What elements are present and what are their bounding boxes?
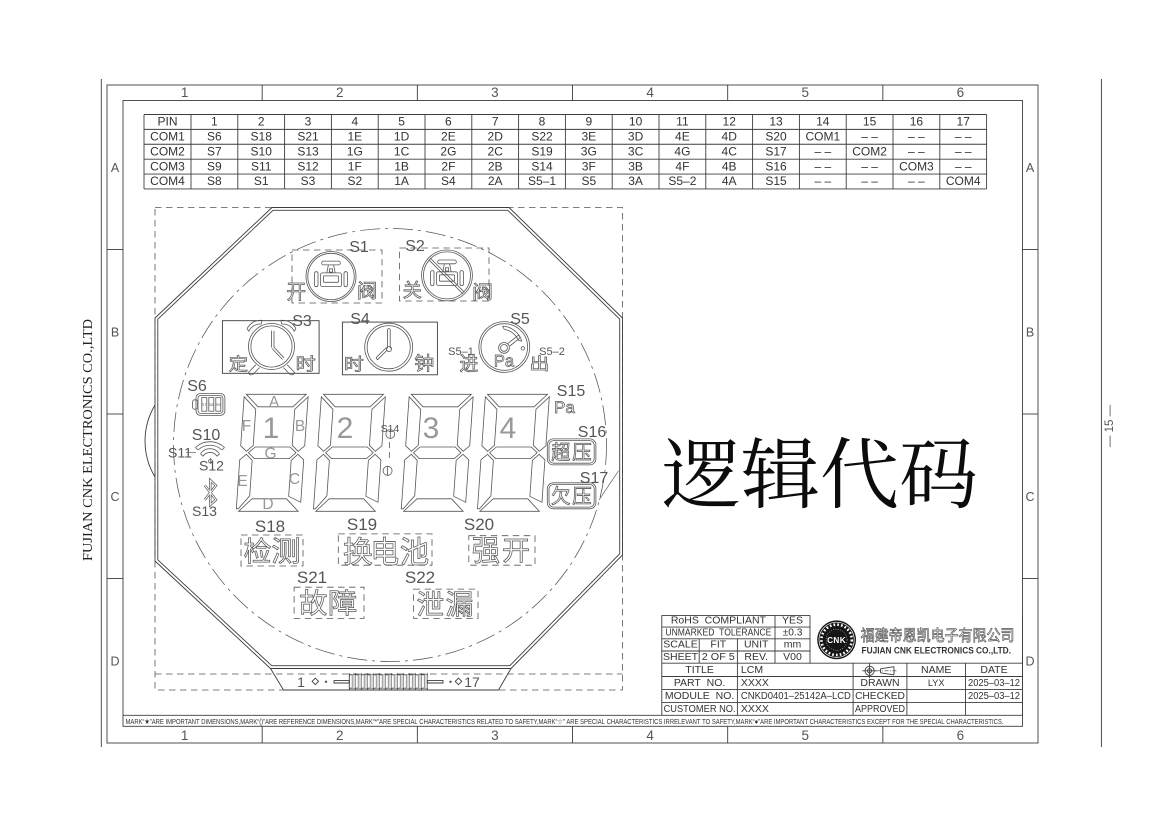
svg-text:4: 4 bbox=[646, 85, 654, 100]
svg-text:D: D bbox=[262, 496, 273, 513]
svg-text:S13: S13 bbox=[192, 503, 217, 519]
svg-text:1G: 1G bbox=[347, 144, 363, 158]
svg-text:S12: S12 bbox=[297, 159, 319, 173]
svg-text:1: 1 bbox=[297, 674, 305, 690]
svg-text:S5–2: S5–2 bbox=[668, 174, 696, 188]
svg-text:COM2: COM2 bbox=[852, 144, 887, 158]
svg-text:S17: S17 bbox=[580, 470, 609, 487]
svg-text:5: 5 bbox=[802, 85, 810, 100]
svg-text:S6: S6 bbox=[187, 378, 207, 395]
svg-text:6: 6 bbox=[957, 85, 965, 100]
svg-text:– –: – – bbox=[955, 144, 972, 158]
svg-text:S12: S12 bbox=[199, 458, 224, 474]
svg-text:2B: 2B bbox=[488, 159, 503, 173]
svg-text:— 15 —: — 15 — bbox=[1104, 404, 1116, 447]
svg-text:APPROVED: APPROVED bbox=[855, 704, 905, 715]
svg-text:13: 13 bbox=[769, 115, 783, 129]
svg-text:2: 2 bbox=[336, 728, 344, 743]
svg-text:UNIT: UNIT bbox=[744, 639, 769, 651]
svg-text:DATE: DATE bbox=[980, 664, 1007, 676]
svg-text:SCALE: SCALE bbox=[663, 639, 697, 651]
svg-text:3A: 3A bbox=[628, 174, 643, 188]
svg-text:COM2: COM2 bbox=[150, 144, 185, 158]
svg-text:B: B bbox=[1026, 325, 1034, 339]
svg-text:XXXX: XXXX bbox=[741, 703, 769, 715]
svg-text:LYX: LYX bbox=[928, 678, 945, 688]
svg-text:S7: S7 bbox=[207, 144, 222, 158]
svg-text:S21: S21 bbox=[297, 130, 319, 144]
svg-text:PART NO.: PART NO. bbox=[674, 677, 726, 689]
svg-text:– –: – – bbox=[861, 174, 878, 188]
svg-text:COM3: COM3 bbox=[899, 159, 934, 173]
svg-text:B: B bbox=[111, 325, 119, 339]
svg-text:S2: S2 bbox=[347, 174, 362, 188]
svg-text:COM1: COM1 bbox=[805, 130, 840, 144]
svg-text:4B: 4B bbox=[722, 159, 737, 173]
svg-text:S20: S20 bbox=[464, 515, 494, 534]
svg-text:3: 3 bbox=[491, 85, 499, 100]
svg-text:1: 1 bbox=[211, 115, 218, 129]
svg-text:– –: – – bbox=[908, 144, 925, 158]
svg-text:S1: S1 bbox=[349, 239, 369, 256]
svg-text:XXXX: XXXX bbox=[741, 677, 769, 689]
svg-text:S16: S16 bbox=[578, 424, 607, 441]
svg-text:S16: S16 bbox=[765, 159, 787, 173]
svg-text:REV.: REV. bbox=[744, 651, 768, 663]
svg-text:S1: S1 bbox=[254, 174, 269, 188]
svg-text:S9: S9 bbox=[207, 159, 222, 173]
svg-text:Pa: Pa bbox=[494, 353, 515, 371]
svg-text:CNKD0401–25142A–LCD: CNKD0401–25142A–LCD bbox=[741, 691, 851, 702]
svg-text:3: 3 bbox=[305, 115, 312, 129]
svg-text:3: 3 bbox=[423, 412, 440, 445]
svg-text:S9: S9 bbox=[216, 402, 222, 407]
svg-text:Pa: Pa bbox=[554, 398, 575, 417]
svg-text:– –: – – bbox=[814, 174, 831, 188]
svg-text:S14: S14 bbox=[381, 423, 400, 435]
svg-text:– –: – – bbox=[861, 159, 878, 173]
svg-text:S19: S19 bbox=[531, 144, 553, 158]
svg-text:4A: 4A bbox=[722, 174, 737, 188]
svg-text:S15: S15 bbox=[765, 174, 787, 188]
svg-text:1: 1 bbox=[263, 412, 280, 445]
svg-text:S13: S13 bbox=[297, 144, 319, 158]
svg-text:4F: 4F bbox=[675, 159, 689, 173]
svg-text:S10: S10 bbox=[192, 427, 221, 444]
svg-text:2025–03–12: 2025–03–12 bbox=[968, 691, 1020, 702]
svg-text:1: 1 bbox=[181, 728, 189, 743]
svg-text:17: 17 bbox=[464, 674, 480, 690]
svg-text:2: 2 bbox=[337, 412, 354, 445]
svg-text:4E: 4E bbox=[675, 130, 690, 144]
svg-text:S8: S8 bbox=[207, 174, 222, 188]
svg-text:C: C bbox=[289, 471, 300, 488]
svg-text:15: 15 bbox=[863, 115, 877, 129]
svg-text:S5: S5 bbox=[510, 311, 530, 328]
svg-text:S19: S19 bbox=[347, 515, 377, 534]
svg-text:11: 11 bbox=[676, 115, 689, 129]
svg-text:2 OF 5: 2 OF 5 bbox=[702, 652, 735, 663]
svg-text:D: D bbox=[110, 654, 119, 668]
svg-text:3E: 3E bbox=[581, 130, 596, 144]
svg-text:1F: 1F bbox=[348, 159, 362, 173]
svg-text:6: 6 bbox=[957, 728, 965, 743]
svg-text:– –: – – bbox=[861, 130, 878, 144]
svg-text:S5–1: S5–1 bbox=[528, 174, 556, 188]
svg-text:1B: 1B bbox=[394, 159, 409, 173]
svg-text:UNMARKED TOLERANCE: UNMARKED TOLERANCE bbox=[665, 627, 771, 638]
svg-text:9: 9 bbox=[585, 115, 592, 129]
svg-text:8: 8 bbox=[539, 115, 546, 129]
svg-text:PIN: PIN bbox=[157, 115, 177, 129]
svg-text:2A: 2A bbox=[488, 174, 503, 188]
svg-text:MODULE NO.: MODULE NO. bbox=[665, 690, 734, 702]
svg-text:S5–2: S5–2 bbox=[539, 346, 565, 358]
svg-text:F: F bbox=[242, 418, 251, 435]
svg-text:S10: S10 bbox=[251, 144, 273, 158]
svg-text:A: A bbox=[269, 394, 280, 411]
svg-text:S5: S5 bbox=[581, 174, 596, 188]
svg-text:2: 2 bbox=[258, 115, 265, 129]
svg-text:7: 7 bbox=[492, 115, 499, 129]
svg-text:S18: S18 bbox=[251, 130, 273, 144]
svg-text:COM1: COM1 bbox=[150, 130, 185, 144]
svg-text:S21: S21 bbox=[297, 568, 327, 587]
svg-text:3B: 3B bbox=[628, 159, 643, 173]
svg-text:6: 6 bbox=[445, 115, 452, 129]
svg-text:5: 5 bbox=[398, 115, 405, 129]
svg-text:A: A bbox=[1026, 161, 1035, 175]
svg-text:– –: – – bbox=[955, 159, 972, 173]
svg-text:2: 2 bbox=[336, 85, 344, 100]
svg-text:S6: S6 bbox=[207, 130, 222, 144]
svg-text:FUJIAN CNK ELECTRONICS CO.,LTD: FUJIAN CNK ELECTRONICS CO.,LTD. bbox=[862, 645, 1012, 655]
svg-text:S11: S11 bbox=[251, 159, 272, 173]
svg-text:– –: – – bbox=[814, 159, 831, 173]
svg-text:S5–1: S5–1 bbox=[448, 346, 474, 358]
svg-text:2C: 2C bbox=[488, 144, 504, 158]
svg-text:14: 14 bbox=[816, 115, 830, 129]
svg-text:DRAWN: DRAWN bbox=[860, 677, 899, 689]
svg-text:S18: S18 bbox=[255, 517, 285, 536]
svg-text:SHEET: SHEET bbox=[663, 651, 699, 663]
svg-text:G: G bbox=[264, 446, 276, 463]
svg-text:4: 4 bbox=[351, 115, 358, 129]
svg-text:COM4: COM4 bbox=[946, 174, 981, 188]
svg-text:LCM: LCM bbox=[741, 664, 763, 676]
svg-text:– –: – – bbox=[908, 174, 925, 188]
svg-text:RoHS COMPLIANT: RoHS COMPLIANT bbox=[671, 615, 767, 627]
svg-text:S14: S14 bbox=[531, 159, 553, 173]
svg-text:S4: S4 bbox=[441, 174, 456, 188]
svg-text:S8: S8 bbox=[209, 402, 215, 407]
svg-text:S4: S4 bbox=[350, 311, 370, 328]
svg-text:FIT: FIT bbox=[710, 639, 726, 651]
svg-text:CHECKED: CHECKED bbox=[855, 691, 905, 702]
svg-text:2025–03–12: 2025–03–12 bbox=[968, 678, 1020, 689]
svg-text:– –: – – bbox=[955, 130, 972, 144]
svg-text:17: 17 bbox=[957, 115, 971, 129]
svg-text:NAME: NAME bbox=[921, 664, 951, 676]
svg-text:S7: S7 bbox=[202, 402, 208, 407]
svg-text:16: 16 bbox=[910, 115, 924, 129]
svg-text:– –: – – bbox=[814, 144, 831, 158]
svg-text:4: 4 bbox=[646, 728, 654, 743]
svg-text:D: D bbox=[1025, 654, 1034, 668]
svg-text:3D: 3D bbox=[628, 130, 644, 144]
svg-text:CNK: CNK bbox=[827, 636, 846, 645]
svg-text:4G: 4G bbox=[674, 144, 690, 158]
svg-text:4C: 4C bbox=[722, 144, 738, 158]
svg-text:2F: 2F bbox=[441, 159, 455, 173]
svg-text:1C: 1C bbox=[394, 144, 410, 158]
svg-text:4: 4 bbox=[500, 412, 517, 445]
svg-text:E: E bbox=[237, 473, 247, 490]
svg-text:A: A bbox=[111, 161, 120, 175]
svg-text:3F: 3F bbox=[582, 159, 596, 173]
svg-text:2G: 2G bbox=[440, 144, 456, 158]
svg-text:±0.3: ±0.3 bbox=[783, 627, 803, 638]
svg-text:10: 10 bbox=[629, 115, 643, 129]
svg-text:MARK“★”ARE IMPORTANT DIMENSION: MARK“★”ARE IMPORTANT DIMENSIONS,MARK“()”… bbox=[126, 717, 1004, 726]
svg-text:B: B bbox=[295, 418, 305, 435]
svg-text:S2: S2 bbox=[405, 238, 425, 255]
svg-text:1: 1 bbox=[181, 85, 189, 100]
svg-text:3: 3 bbox=[491, 728, 499, 743]
svg-text:FUJIAN CNK ELECTRONICS CO.,LTD: FUJIAN CNK ELECTRONICS CO.,LTD bbox=[81, 319, 96, 561]
svg-text:12: 12 bbox=[723, 115, 737, 129]
svg-text:5: 5 bbox=[802, 728, 810, 743]
svg-text:2E: 2E bbox=[441, 130, 456, 144]
svg-text:3G: 3G bbox=[581, 144, 597, 158]
svg-text:TITLE: TITLE bbox=[685, 664, 714, 676]
svg-text:V00: V00 bbox=[783, 651, 802, 663]
svg-text:CUSTOMER NO.: CUSTOMER NO. bbox=[664, 704, 736, 715]
svg-text:3C: 3C bbox=[628, 144, 644, 158]
svg-text:C: C bbox=[110, 490, 119, 504]
svg-text:S22: S22 bbox=[531, 130, 553, 144]
svg-text:S15: S15 bbox=[557, 383, 586, 400]
svg-text:S20: S20 bbox=[765, 130, 787, 144]
svg-text:C: C bbox=[1025, 490, 1034, 504]
svg-text:4D: 4D bbox=[722, 130, 738, 144]
svg-text:1A: 1A bbox=[394, 174, 409, 188]
svg-text:S3: S3 bbox=[292, 313, 312, 330]
svg-text:S17: S17 bbox=[765, 144, 787, 158]
svg-text:1E: 1E bbox=[347, 130, 362, 144]
svg-text:mm: mm bbox=[784, 639, 802, 651]
svg-text:YES: YES bbox=[782, 615, 803, 627]
svg-text:COM4: COM4 bbox=[150, 174, 185, 188]
svg-text:COM3: COM3 bbox=[150, 159, 185, 173]
svg-text:1D: 1D bbox=[394, 130, 410, 144]
svg-text:S3: S3 bbox=[301, 174, 316, 188]
svg-text:2D: 2D bbox=[488, 130, 504, 144]
svg-text:S22: S22 bbox=[405, 568, 435, 587]
svg-text:– –: – – bbox=[908, 130, 925, 144]
